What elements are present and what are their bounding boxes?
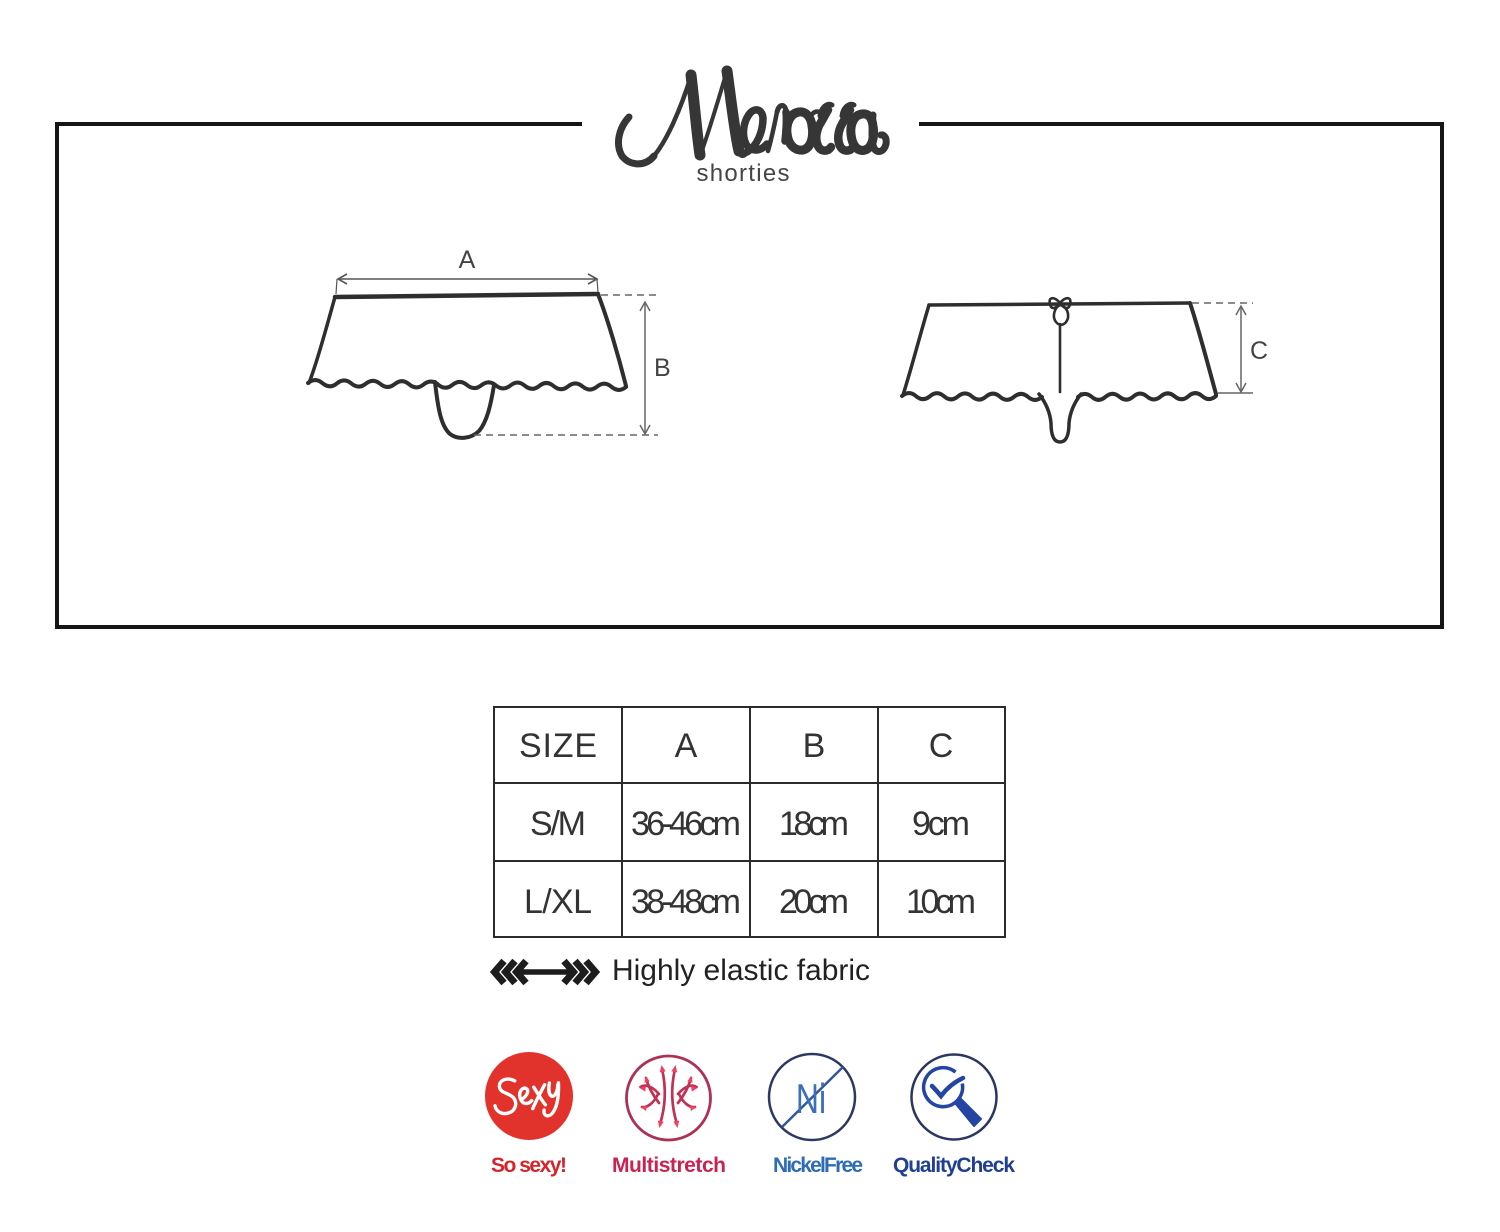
svg-text:SIZE: SIZE	[519, 727, 597, 765]
svg-text:9cm: 9cm	[912, 805, 970, 843]
svg-text:S/M: S/M	[530, 805, 586, 843]
svg-text:C: C	[1250, 337, 1268, 365]
svg-text:L/XL: L/XL	[524, 883, 592, 921]
svg-text:18cm: 18cm	[779, 805, 849, 843]
svg-text:A: A	[675, 727, 698, 765]
svg-text:C: C	[929, 727, 954, 765]
svg-text:20cm: 20cm	[779, 883, 849, 921]
svg-text:10cm: 10cm	[906, 883, 976, 921]
svg-text:QualityCheck: QualityCheck	[893, 1154, 1015, 1177]
svg-text:Highly elastic fabric: Highly elastic fabric	[612, 954, 870, 987]
svg-text:B: B	[803, 727, 826, 765]
svg-text:shorties: shorties	[697, 160, 792, 187]
svg-text:A: A	[459, 246, 476, 274]
svg-text:Multistretch: Multistretch	[612, 1154, 726, 1177]
svg-text:Ni: Ni	[796, 1075, 826, 1122]
svg-text:B: B	[654, 354, 671, 382]
svg-text:NickelFree: NickelFree	[773, 1154, 863, 1177]
svg-text:So sexy!: So sexy!	[491, 1154, 567, 1177]
svg-text:38-48cm: 38-48cm	[631, 883, 741, 921]
svg-text:36-46cm: 36-46cm	[631, 805, 741, 843]
